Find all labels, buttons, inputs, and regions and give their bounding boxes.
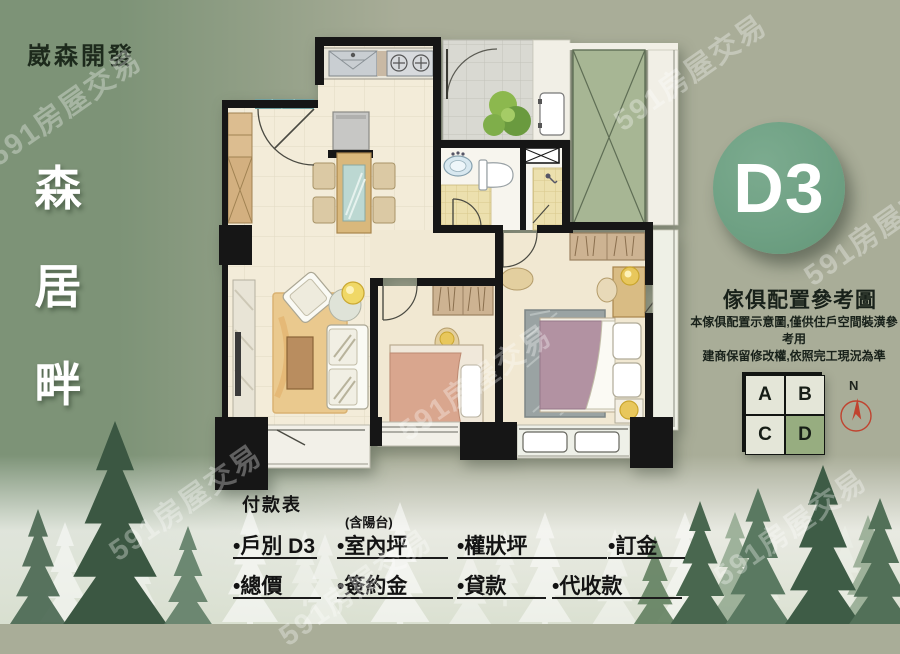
pillow-icon xyxy=(461,365,481,417)
payment-table-title: 付款表 xyxy=(242,491,302,517)
lamp-icon xyxy=(440,332,454,346)
tv-icon xyxy=(235,332,241,396)
field-indoor-area: •室內坪 xyxy=(337,530,448,559)
fridge-icon xyxy=(333,112,369,150)
ac-unit-icon xyxy=(575,432,619,452)
field-unit: •戶別 D3 xyxy=(233,530,317,559)
balcony-included-note: (含陽台) xyxy=(345,512,393,531)
project-char-1: 森 xyxy=(35,150,82,219)
project-char-3: 畔 xyxy=(35,346,82,415)
dining-chair xyxy=(373,197,395,223)
project-name: 森 居 畔 xyxy=(30,150,86,415)
living-balcony xyxy=(255,425,370,468)
kitchen-sink-icon xyxy=(329,51,377,76)
void-area xyxy=(573,50,645,225)
field-deposit: •訂金 xyxy=(608,530,685,559)
unit-badge: D3 xyxy=(713,122,845,254)
living-room xyxy=(233,270,368,420)
furniture-note-title: 傢俱配置參考圖 xyxy=(700,284,900,314)
desk-chair xyxy=(597,278,617,302)
linen-cabinet xyxy=(523,148,559,163)
field-total-price: •總價 xyxy=(233,570,321,599)
dining-chair xyxy=(313,197,335,223)
bedroom2-window xyxy=(378,422,460,446)
hallway-floor xyxy=(370,230,503,278)
ac-unit-icon xyxy=(523,432,567,452)
dining-chair xyxy=(373,163,395,189)
furniture-note-body: 本傢俱配置示意圖,僅供住戶空間裝潢參考用 建商保留修改權,依照完工現況為準 xyxy=(688,314,900,365)
ac-balcony xyxy=(517,425,630,458)
shower-room xyxy=(533,168,567,230)
lamp-icon xyxy=(620,401,638,419)
unit-cell-c[interactable]: C xyxy=(745,415,785,455)
entry-cabinet xyxy=(228,113,252,223)
pillow-icon xyxy=(613,363,641,397)
pillow-icon xyxy=(613,323,641,359)
field-loan: •貸款 xyxy=(457,570,546,599)
developer-name: 崴森開發 xyxy=(27,36,135,71)
bench xyxy=(501,268,533,290)
unit-cell-d[interactable]: D xyxy=(785,415,825,455)
stove-icon xyxy=(387,51,433,76)
page: { "watermark": {"text": "591房屋交易"}, "bra… xyxy=(0,0,900,624)
tv-console xyxy=(233,280,255,420)
master-wardrobe xyxy=(570,233,645,260)
field-title-area: •權狀坪 xyxy=(457,530,607,559)
unit-badge-label: D3 xyxy=(733,148,824,228)
unit-cell-a[interactable]: A xyxy=(745,375,785,415)
compass: N xyxy=(833,378,879,440)
dining-chair xyxy=(313,163,335,189)
furniture-note-line1: 本傢俱配置示意圖,僅供住戶空間裝潢參考用 xyxy=(688,314,900,348)
unit-cell-b[interactable]: B xyxy=(785,375,825,415)
coffee-table xyxy=(287,337,313,389)
compass-n-label: N xyxy=(849,378,858,393)
field-collection: •代收款 xyxy=(552,570,682,599)
floorplan xyxy=(215,27,695,492)
sofa xyxy=(327,325,368,409)
furniture-note-line2: 建商保留修改權,依照完工現況為準 xyxy=(688,348,900,365)
field-signing-fee: •簽約金 xyxy=(337,570,453,599)
utility-balcony xyxy=(443,40,533,140)
unit-selector-grid: A B C D xyxy=(742,372,822,452)
bed-2 xyxy=(390,345,483,425)
wardrobe-2 xyxy=(433,283,493,315)
project-char-2: 居 xyxy=(35,248,82,317)
water-heater-icon xyxy=(538,93,564,135)
